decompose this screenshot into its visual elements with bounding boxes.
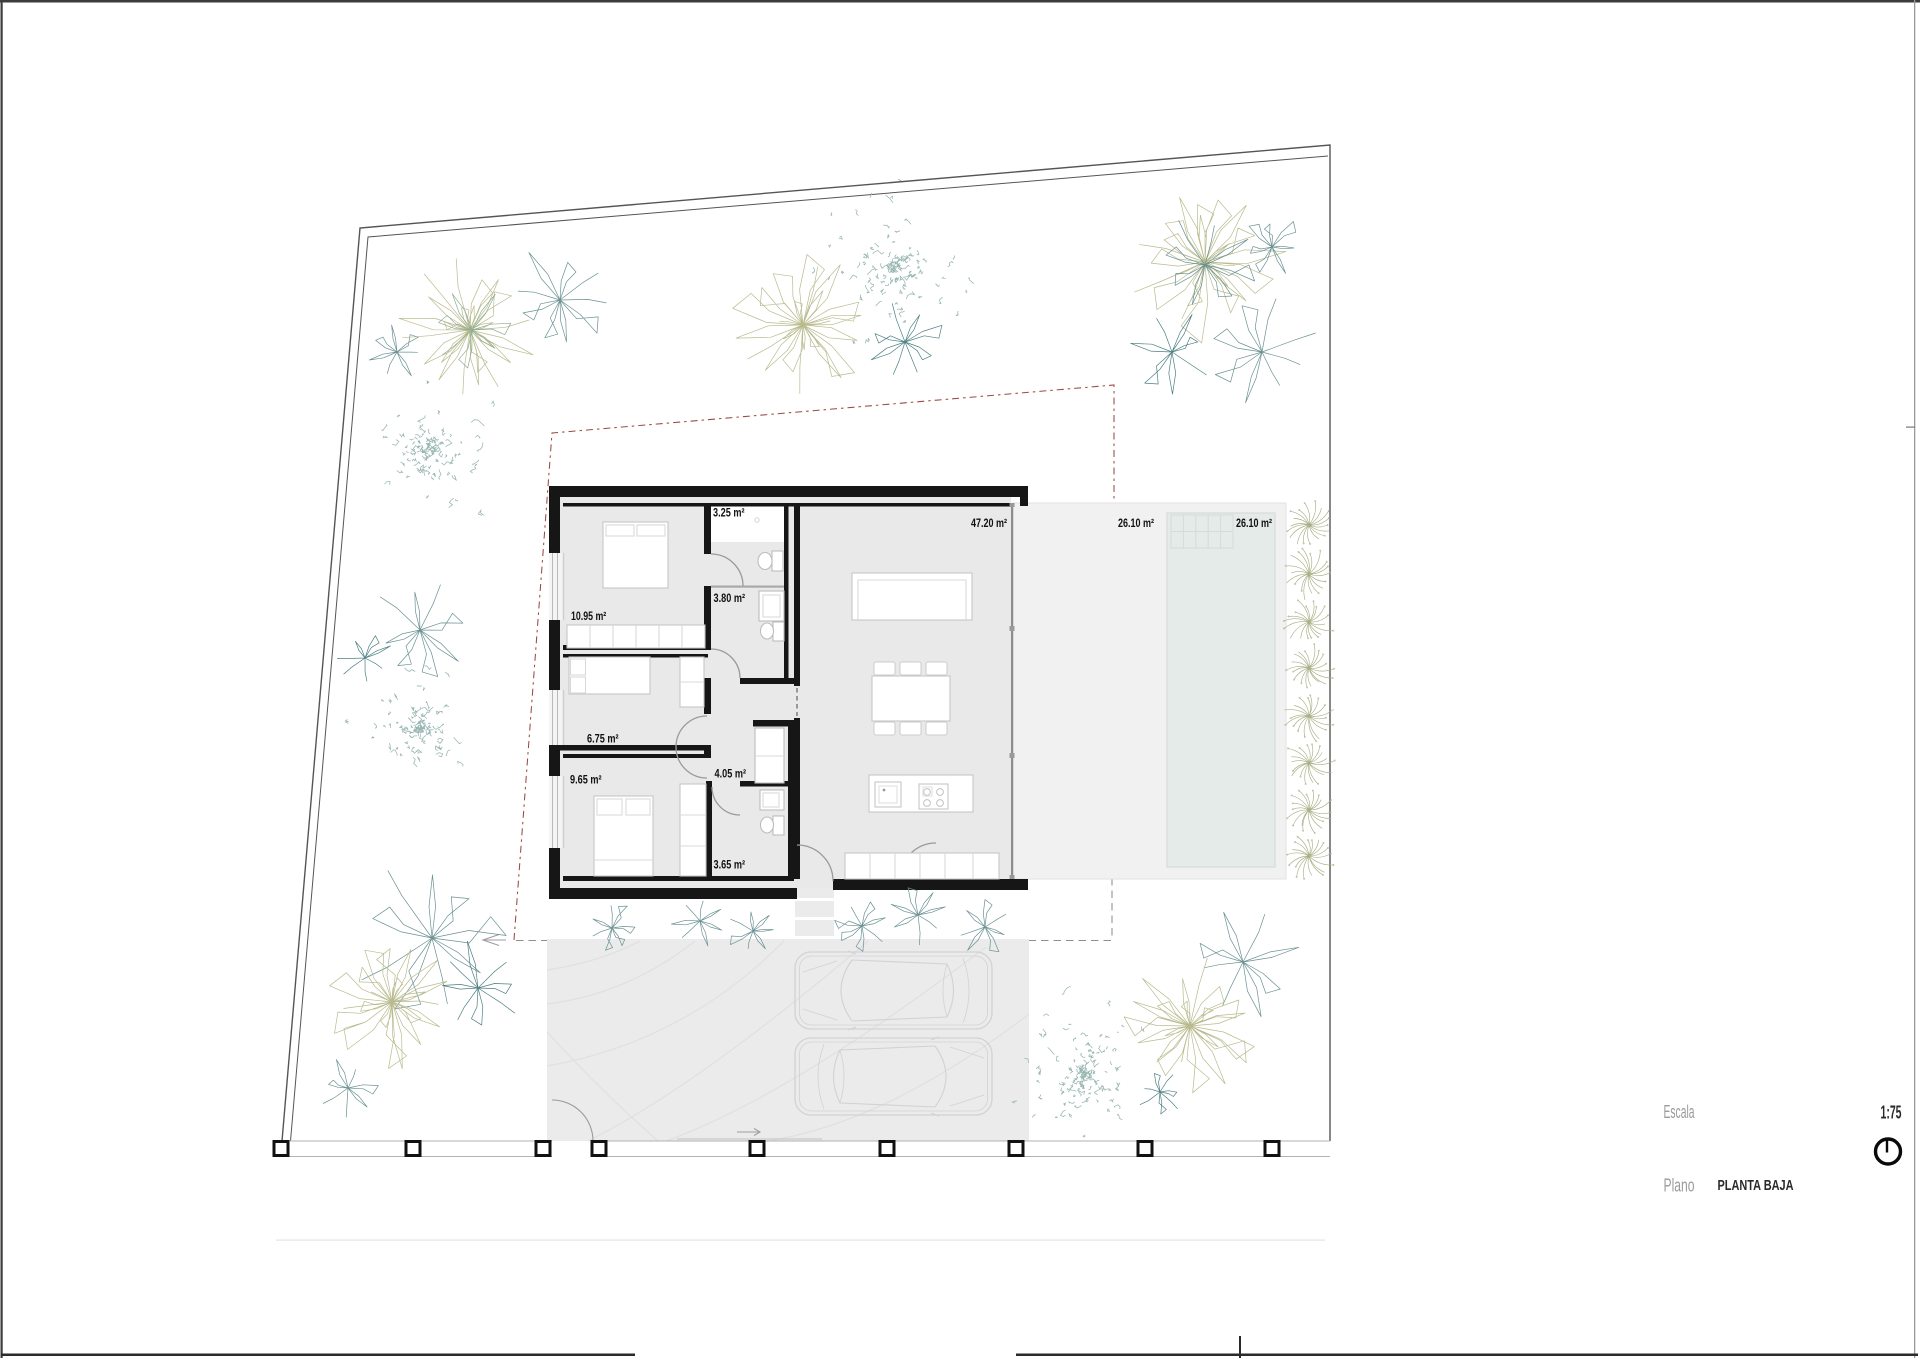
svg-text:Escala: Escala bbox=[1664, 1101, 1695, 1122]
svg-text:26.10 m²: 26.10 m² bbox=[1236, 516, 1272, 530]
svg-text:47.20 m²: 47.20 m² bbox=[971, 516, 1007, 530]
svg-text:3.25 m²: 3.25 m² bbox=[713, 506, 745, 520]
svg-text:Plano: Plano bbox=[1664, 1175, 1695, 1196]
svg-text:10.95 m²: 10.95 m² bbox=[571, 609, 606, 623]
svg-text:3.65 m²: 3.65 m² bbox=[714, 858, 746, 872]
svg-text:26.10 m²: 26.10 m² bbox=[1118, 516, 1154, 530]
svg-text:4.05 m²: 4.05 m² bbox=[715, 767, 747, 781]
svg-text:6.75 m²: 6.75 m² bbox=[587, 732, 619, 746]
svg-text:3.80 m²: 3.80 m² bbox=[714, 591, 746, 605]
svg-text:9.65 m²: 9.65 m² bbox=[570, 773, 602, 787]
svg-text:PLANTA BAJA: PLANTA BAJA bbox=[1718, 1178, 1794, 1194]
svg-text:1:75: 1:75 bbox=[1881, 1102, 1902, 1123]
